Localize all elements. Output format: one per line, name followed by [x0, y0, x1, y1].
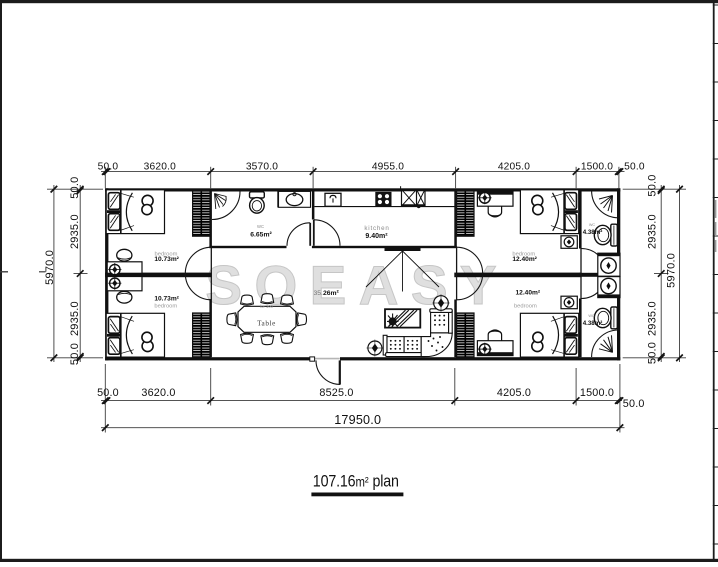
svg-text:3620.0: 3620.0: [141, 387, 175, 399]
svg-text:8525.0: 8525.0: [319, 387, 353, 399]
svg-text:10.73m²: 10.73m²: [154, 256, 179, 263]
svg-text:50.0: 50.0: [647, 342, 659, 364]
svg-text:2935.0: 2935.0: [69, 214, 81, 249]
svg-text:35.26m²: 35.26m²: [314, 290, 340, 297]
svg-text:12.40m²: 12.40m²: [512, 256, 537, 263]
svg-text:1500.0: 1500.0: [580, 387, 614, 399]
svg-text:4955.0: 4955.0: [372, 162, 404, 173]
svg-text:50.0: 50.0: [623, 398, 645, 410]
svg-text:Table: Table: [257, 320, 276, 328]
svg-text:4205.0: 4205.0: [498, 162, 530, 173]
svg-text:17950.0: 17950.0: [334, 413, 381, 427]
svg-text:9.40m²: 9.40m²: [365, 233, 388, 240]
svg-text:5970.0: 5970.0: [666, 253, 678, 288]
svg-text:3570.0: 3570.0: [246, 162, 278, 173]
svg-text:10.73m²: 10.73m²: [154, 296, 179, 303]
svg-text:50.0: 50.0: [624, 162, 645, 173]
svg-text:2935.0: 2935.0: [647, 214, 659, 249]
svg-text:2935.0: 2935.0: [647, 301, 659, 336]
svg-text:1500.0: 1500.0: [581, 162, 613, 173]
svg-text:50.0: 50.0: [97, 387, 119, 399]
svg-text:bedroom: bedroom: [154, 303, 177, 309]
svg-text:WC: WC: [257, 224, 264, 229]
svg-text:kitchen: kitchen: [364, 225, 389, 232]
svg-text:50.0: 50.0: [98, 162, 119, 173]
svg-text:50.0: 50.0: [69, 177, 81, 199]
svg-text:107.16m² plan: 107.16m² plan: [313, 473, 399, 491]
svg-text:50.0: 50.0: [647, 174, 659, 196]
svg-text:50.0: 50.0: [69, 343, 81, 365]
svg-text:4.38m²: 4.38m²: [583, 320, 603, 327]
svg-text:3620.0: 3620.0: [144, 162, 176, 173]
svg-text:WC: WC: [588, 314, 595, 318]
svg-text:5970.0: 5970.0: [44, 250, 56, 285]
svg-text:bedroom: bedroom: [514, 303, 537, 309]
svg-text:2935.0: 2935.0: [69, 301, 81, 336]
svg-text:for 100: for 100: [260, 304, 274, 309]
svg-text:4205.0: 4205.0: [497, 387, 531, 399]
svg-text:12.40m²: 12.40m²: [516, 289, 541, 296]
svg-text:WC: WC: [589, 223, 596, 227]
svg-text:4.38m²: 4.38m²: [583, 229, 603, 236]
svg-text:6.65m²: 6.65m²: [250, 232, 272, 239]
